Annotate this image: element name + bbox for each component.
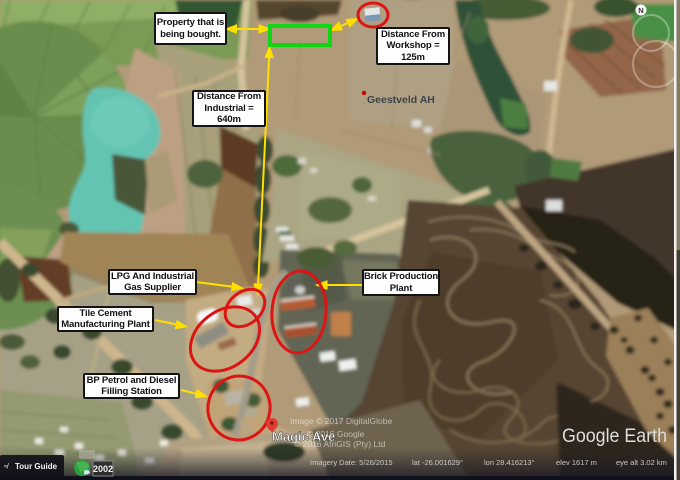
svg-text:© 2016 AfriGIS (Pty) Ltd: © 2016 AfriGIS (Pty) Ltd	[294, 439, 386, 449]
svg-text:eye alt 3.02 km: eye alt 3.02 km	[616, 458, 667, 467]
svg-text:2002: 2002	[93, 464, 113, 474]
svg-text:Imagery Date: 5/26/2015: Imagery Date: 5/26/2015	[310, 458, 393, 467]
svg-text:Google Earth: Google Earth	[562, 425, 667, 447]
svg-text:lat -26.001629°: lat -26.001629°	[412, 458, 463, 467]
svg-text:Image © 2017 DigitalGlobe: Image © 2017 DigitalGlobe	[290, 416, 392, 426]
svg-text:elev 1617 m: elev 1617 m	[556, 458, 597, 467]
svg-text:Geestveld AH: Geestveld AH	[367, 94, 435, 106]
svg-text:lon 28.416213°: lon 28.416213°	[484, 458, 535, 467]
svg-text:© 2016 Google: © 2016 Google	[307, 429, 365, 439]
svg-text:Tour Guide: Tour Guide	[15, 462, 58, 471]
svg-text:N: N	[638, 6, 643, 15]
